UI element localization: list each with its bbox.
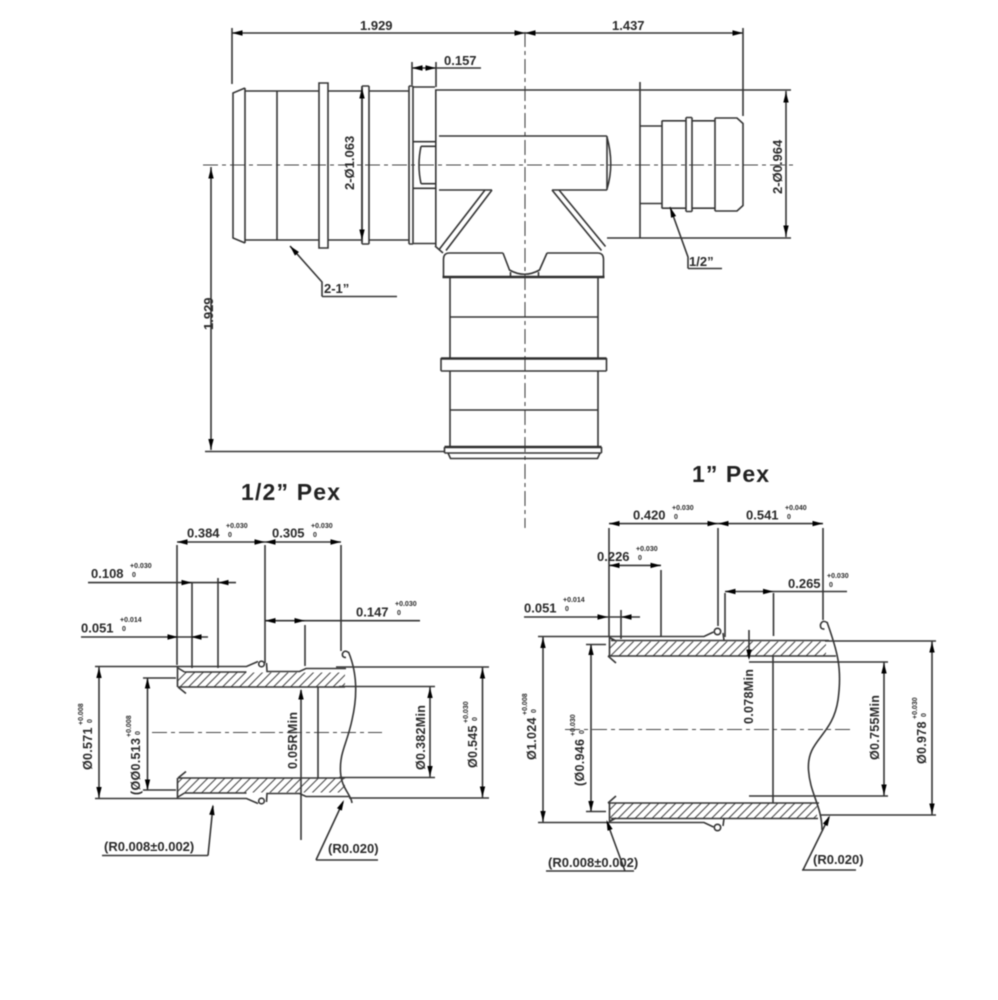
svg-text:0: 0 [674, 514, 678, 521]
svg-text:(R0.020): (R0.020) [813, 852, 864, 867]
svg-text:0: 0 [132, 572, 136, 579]
svg-text:+0.030: +0.030 [226, 523, 248, 530]
svg-text:+0.030: +0.030 [636, 546, 658, 553]
svg-text:0.420: 0.420 [633, 508, 666, 523]
svg-text:0: 0 [313, 532, 317, 539]
svg-text:(R0.008±0.002): (R0.008±0.002) [104, 839, 194, 854]
svg-text:0: 0 [397, 610, 401, 617]
svg-text:0.226: 0.226 [597, 549, 630, 564]
svg-text:0: 0 [228, 532, 232, 539]
svg-text:0.05RMin: 0.05RMin [286, 712, 300, 769]
svg-text:0: 0 [638, 555, 642, 562]
svg-text:+0.040: +0.040 [785, 505, 807, 512]
svg-text:1.437: 1.437 [612, 18, 645, 33]
svg-text:+0.014: +0.014 [563, 597, 585, 604]
svg-text:+0.030: +0.030 [672, 505, 694, 512]
svg-text:+0.030: +0.030 [311, 523, 333, 530]
svg-text:0.265: 0.265 [788, 576, 821, 591]
svg-text:0.051: 0.051 [524, 601, 557, 616]
svg-text:0.051: 0.051 [81, 621, 114, 636]
svg-text:(ØØ0.513: (ØØ0.513 [129, 738, 143, 795]
svg-text:0.157: 0.157 [444, 53, 477, 68]
svg-text:Ø1.024: Ø1.024 [525, 717, 539, 760]
svg-text:(R0.008±0.002): (R0.008±0.002) [548, 855, 638, 870]
svg-text:Ø0.545: Ø0.545 [466, 725, 480, 768]
svg-text:1.929: 1.929 [360, 18, 393, 33]
svg-text:1/2”: 1/2” [689, 254, 714, 269]
svg-text:0: 0 [472, 717, 479, 721]
svg-text:0: 0 [579, 730, 586, 734]
svg-text:+0.030: +0.030 [463, 701, 470, 723]
svg-text:2-1”: 2-1” [324, 281, 349, 296]
svg-text:0: 0 [531, 709, 538, 713]
svg-text:+0.030: +0.030 [912, 697, 919, 719]
svg-text:0: 0 [787, 514, 791, 521]
svg-text:0.108: 0.108 [91, 566, 124, 581]
svg-text:Ø0.382Min: Ø0.382Min [414, 705, 428, 770]
svg-text:1” Pex: 1” Pex [692, 461, 769, 487]
svg-text:+0.030: +0.030 [130, 563, 152, 570]
svg-text:0.305: 0.305 [272, 526, 305, 541]
svg-text:+0.030: +0.030 [570, 714, 577, 736]
svg-text:0.147: 0.147 [356, 605, 389, 620]
svg-text:+0.008: +0.008 [126, 715, 133, 737]
svg-text:1/2” Pex: 1/2” Pex [241, 479, 340, 505]
svg-text:0.078Min: 0.078Min [742, 669, 756, 724]
svg-text:0: 0 [829, 582, 833, 589]
svg-text:0.384: 0.384 [187, 526, 220, 541]
svg-text:+0.030: +0.030 [395, 601, 417, 608]
svg-text:+0.030: +0.030 [827, 573, 849, 580]
svg-text:+0.008: +0.008 [78, 703, 85, 725]
svg-text:0: 0 [921, 713, 928, 717]
svg-text:(Ø0.946: (Ø0.946 [573, 739, 587, 786]
svg-text:+0.008: +0.008 [522, 693, 529, 715]
svg-text:1.929: 1.929 [201, 297, 216, 330]
svg-text:0: 0 [87, 719, 94, 723]
svg-text:Ø0.978: Ø0.978 [915, 721, 929, 764]
svg-text:2-Ø1.063: 2-Ø1.063 [342, 136, 357, 190]
svg-text:0: 0 [565, 606, 569, 613]
svg-text:(R0.020): (R0.020) [328, 841, 379, 856]
svg-text:0.541: 0.541 [746, 508, 779, 523]
svg-text:+0.014: +0.014 [120, 617, 142, 624]
svg-text:2-Ø0.964: 2-Ø0.964 [770, 139, 785, 194]
svg-text:0: 0 [135, 731, 142, 735]
svg-text:Ø0.755Min: Ø0.755Min [868, 695, 882, 760]
svg-text:0: 0 [122, 626, 126, 633]
svg-text:Ø0.571: Ø0.571 [81, 727, 95, 770]
